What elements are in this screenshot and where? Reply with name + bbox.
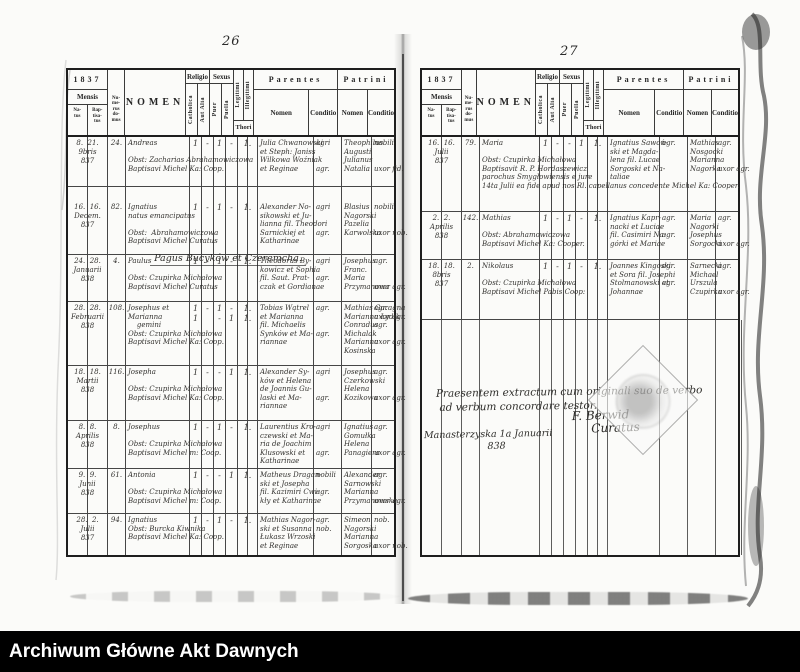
seal-disc: [605, 363, 681, 439]
mark-puella: -: [226, 514, 238, 555]
parentes-header: Parentes: [604, 70, 683, 90]
patrini-conditio-header: Conditio: [712, 90, 738, 135]
table-header: 1837 Mensis Na- tus Bap- tisa- tus Nu- m…: [68, 70, 394, 137]
thori-header: Thori: [234, 120, 253, 135]
mensis-header: Mensis: [422, 90, 461, 105]
mark-thori: 1.: [238, 366, 258, 420]
register-entry-row: 28. 2. Julii 837 94. Ignatius Obst: Burc…: [68, 514, 394, 555]
baptism-register-table: 1837 Mensis Na- tus Bap- tisa- tus Nu- m…: [66, 68, 396, 557]
baptisatus-header: Bap- tisa- tus: [442, 105, 461, 135]
register-entry-row: 16. 16. Julii 837 79. Maria Obst: Czupir…: [422, 137, 738, 212]
mark-thori: 1.: [238, 469, 258, 513]
register-entry-row: 9. 9. Junii 838 61. Antonia Obst: Czupir…: [68, 469, 394, 514]
parentes-conditio: agr. nob.: [314, 514, 342, 555]
patrini-nomen: Alexander Sarnowski Marianna Przymanowsk…: [342, 469, 372, 513]
patrini-nomen: Mathias Garagna Marianna Łydik Conradus …: [342, 302, 372, 365]
register-entry-row: 8. 21. 9bris 837 24. Andreas Obst: Zacha…: [68, 137, 394, 187]
mark-aut-alia: -: [552, 137, 564, 211]
nomen-header: NOMEN: [125, 70, 186, 135]
mark-puella: 1: [226, 366, 238, 420]
entry-name: Antonia Obst: Czupirka Michałowa Baptisa…: [126, 469, 190, 513]
parentes-nomen: Ignatius Sawoń- ski et Magda- lena fil. …: [608, 137, 660, 211]
mark-thori: 1. 1.: [238, 302, 258, 365]
patrini-conditio: nobili uxor nob.: [372, 187, 398, 254]
parentes-nomen: Ignatius Kapr- nacki et Luciae fil. Casi…: [608, 212, 660, 259]
entry-house-number: 82.: [108, 187, 126, 254]
year-header: 1837: [422, 70, 461, 90]
mark-puer: 1: [214, 137, 226, 186]
parentes-conditio: agr. agr.: [660, 212, 688, 259]
table-header: 1837 Mensis Na- tus Bap- tisa- tus Nu- m…: [422, 70, 738, 137]
entry-date: 9. 9. Junii 838: [68, 469, 108, 513]
archive-scan: 26 1837 Mensis Na- tus Bap- tisa- tus Nu…: [0, 0, 800, 672]
mark-catholica: 1: [540, 212, 552, 259]
patrini-conditio-header: Conditio: [368, 90, 394, 135]
parentes-conditio: agri agr.: [314, 137, 342, 186]
mark-aut-alia: -: [202, 137, 214, 186]
mark-thori: 1.: [588, 260, 608, 319]
mark-aut-alia: -: [202, 302, 214, 365]
entry-rows: 16. 16. Julii 837 79. Maria Obst: Czupir…: [422, 137, 738, 320]
mark-catholica: 1: [190, 469, 202, 513]
mark-catholica: 1: [540, 260, 552, 319]
entry-house-number: 142.: [462, 212, 480, 259]
entry-date: 18. 18. Martii 838: [68, 366, 108, 420]
entry-house-number: 24.: [108, 137, 126, 186]
catholica-header: Catholica: [538, 95, 544, 124]
puella-header: Puella: [224, 100, 230, 119]
register-page-left: 26 1837 Mensis Na- tus Bap- tisa- tus Nu…: [60, 28, 400, 613]
entry-house-number: 61.: [108, 469, 126, 513]
mark-puella: - 1: [226, 302, 238, 365]
mark-aut-alia: -: [202, 469, 214, 513]
patrini-header: Patrini: [684, 70, 738, 90]
aut-alia-header: Aut Alia: [550, 97, 556, 123]
entry-date: 18. 18. 8bris 837: [422, 260, 462, 319]
archive-name-label: Archiwum Główne Akt Dawnych: [9, 641, 299, 662]
mark-aut-alia: -: [202, 514, 214, 555]
religio-header: Religio: [536, 70, 559, 84]
mark-aut-alia: -: [202, 187, 214, 254]
register-entry-row: 2. 2. Aprilis 838 142. Mathias Obst: Abr…: [422, 212, 738, 260]
parentes-nomen: Alexander Sy- ków et Helena de Joannis G…: [258, 366, 314, 420]
parentes-conditio-header: Conditio: [655, 90, 683, 135]
mark-thori: 1.: [238, 187, 258, 254]
patrini-conditio: nobili uxor fid.: [372, 137, 398, 186]
mark-thori: 1.: [238, 421, 258, 468]
patrini-conditio: agr. uxor agr.: [716, 212, 742, 259]
mark-catholica: 1: [540, 137, 552, 211]
mark-puer: 1: [214, 514, 226, 555]
patrini-nomen: Mathias Nosgocki Marianna Nagorka: [688, 137, 716, 211]
patrini-conditio: agr. uxor agr.: [716, 137, 742, 211]
mark-catholica: 1: [190, 187, 202, 254]
legitimi-header: Legitimi: [585, 82, 591, 108]
catholica-header: Catholica: [188, 95, 194, 124]
mark-catholica: 1: [190, 514, 202, 555]
illegitimi-header: Illegitimi: [595, 81, 601, 109]
entry-date: 16. 16. Julii 837: [422, 137, 462, 211]
entry-name: Ignatius natus emancipatus Obst: Abraham…: [126, 187, 190, 254]
parentes-nomen-header: Nomen: [604, 90, 655, 135]
patrini-nomen: Simeon Nagorski Marianna Sorgoska: [342, 514, 372, 555]
mark-puer: 1: [214, 187, 226, 254]
mark-puella: 1: [576, 137, 588, 211]
parentes-nomen: Laurentius Kro- czewski et Ma- ria de Jo…: [258, 421, 314, 468]
entry-house-number: 79.: [462, 137, 480, 211]
entry-date: 16. 16. Decem. 837: [68, 187, 108, 254]
patrini-conditio: agr. uxor agr.: [716, 260, 742, 319]
parentes-nomen: Mathias Nagor- ski et Susanna Łukasz Wrz…: [258, 514, 314, 555]
mark-thori: 1.: [238, 137, 258, 186]
patrini-conditio: agr. uxor agr.: [372, 255, 398, 301]
baptisatus-header: Bap- tisa- tus: [88, 105, 107, 135]
archive-caption-bar: Archiwum Główne Akt Dawnych: [0, 631, 800, 672]
legitimi-header: Legitimi: [235, 82, 241, 108]
illegitimi-header: Illegitimi: [245, 81, 251, 109]
natus-header: Na- tus: [422, 105, 442, 135]
sexus-header: Sexus: [560, 70, 583, 84]
parentes-nomen: Tobias Wątrel et Marianna fil. Michaelis…: [258, 302, 314, 365]
mark-aut-alia: -: [552, 212, 564, 259]
patrini-nomen: Maria Nagorki Josephus Sorgocki: [688, 212, 716, 259]
mark-puella: -: [576, 212, 588, 259]
patrini-nomen: Theophilus Augusti Julianus Natalia: [342, 137, 372, 186]
entry-name: Maria Obst: Czupirka Michałowa Baptisavi…: [480, 137, 540, 211]
patrini-conditio: nob. uxor nob.: [372, 514, 398, 555]
mark-puella: -: [226, 421, 238, 468]
entry-date: 8. 21. 9bris 837: [68, 137, 108, 186]
religio-header: Religio: [186, 70, 209, 84]
entry-house-number: 116.: [108, 366, 126, 420]
patrini-nomen: Ignatius Gomułka Helena Panagiera: [342, 421, 372, 468]
aut-alia-header: Aut Alia: [200, 97, 206, 123]
patrini-nomen: Josephus Czerkowski Helena Kozikowa: [342, 366, 372, 420]
patrini-nomen-header: Nomen: [338, 90, 368, 135]
year-header: 1837: [68, 70, 107, 90]
patrini-conditio: agr. uxor agr. agr. uxor agr.: [372, 302, 398, 365]
entry-date: 2. 2. Aprilis 838: [422, 212, 462, 259]
certification-place-date: Manasterzyska 1a Januarii 838: [424, 428, 553, 454]
patrini-conditio: agr. uxor agr.: [372, 421, 398, 468]
entry-house-number: 94.: [108, 514, 126, 555]
entry-date: 8. 8. Aprilis 838: [68, 421, 108, 468]
mark-aut-alia: -: [202, 421, 214, 468]
patrini-nomen: Blasius Nagorski Pazelia Karwolska: [342, 187, 372, 254]
patrini-conditio: agr. uxor agr.: [372, 366, 398, 420]
mark-aut-alia: -: [202, 366, 214, 420]
mensis-header: Mensis: [68, 90, 107, 105]
parentes-header: Parentes: [254, 70, 337, 90]
baptism-register-table: 1837 Mensis Na- tus Bap- tisa- tus Nu- m…: [420, 68, 740, 557]
entry-date: 24. 28. Januarii 838: [68, 255, 108, 301]
register-page-right: 27 1837 Mensis Na- tus Bap- tisa- tus Nu…: [414, 28, 746, 613]
mark-thori: 1.: [588, 137, 608, 211]
mark-catholica: 1: [190, 421, 202, 468]
mark-puella: -: [226, 137, 238, 186]
parentes-nomen-header: Nomen: [254, 90, 309, 135]
mark-puer: 1 -: [214, 302, 226, 365]
parentes-conditio: agr. agr.: [314, 302, 342, 365]
register-entry-row: 16. 16. Decem. 837 82. Ignatius natus em…: [68, 187, 394, 255]
patrini-conditio: agr. uxor agr.: [372, 469, 398, 513]
mark-puer: 1: [214, 421, 226, 468]
patrini-nomen-header: Nomen: [684, 90, 712, 135]
parentes-nomen: Julia Chwanowski et Steph: Janiss Wilkow…: [258, 137, 314, 186]
mark-catholica: 1: [190, 366, 202, 420]
mark-puella: 1: [226, 469, 238, 513]
entry-name: Josephus Obst: Czupirka Michałowa Baptis…: [126, 421, 190, 468]
entry-house-number: 8.: [108, 421, 126, 468]
register-entry-row: 8. 8. Aprilis 838 8. Josephus Obst: Czup…: [68, 421, 394, 469]
page-number: 26: [222, 34, 241, 49]
mark-puer: -: [214, 469, 226, 513]
mark-thori: 1.: [588, 212, 608, 259]
mark-puella: -: [226, 187, 238, 254]
parentes-nomen: Joannes Kingoski et Sora fil. Josephi St…: [608, 260, 660, 319]
entry-name: Nikolaus Obst: Czupirka Michałowa Baptis…: [480, 260, 540, 319]
entry-name: Andreas Obst: Zacharias Abrahamowiczowa …: [126, 137, 190, 186]
register-entry-row: 18. 18. Martii 838 116. Josepha Obst: Cz…: [68, 366, 394, 421]
entry-name: Josephus et Marianna gemini Obst: Czupir…: [126, 302, 190, 365]
natus-header: Na- tus: [68, 105, 88, 135]
mark-catholica: 1 1: [190, 302, 202, 365]
patrini-nomen: Sarnecki Michael Urszula Czupirka: [688, 260, 716, 319]
parentes-conditio: agr. agr.: [660, 260, 688, 319]
parentes-conditio: agri agr.: [314, 187, 342, 254]
entry-name: Mathias Obst: Abrahamowiczowa Baptisavi …: [480, 212, 540, 259]
patrini-header: Patrini: [338, 70, 394, 90]
mark-puer: 1: [564, 212, 576, 259]
nomen-header: NOMEN: [477, 70, 536, 135]
numerus-domus-header: Nu- me- rus do- mus: [462, 70, 477, 135]
mark-puer: -: [214, 366, 226, 420]
sexus-header: Sexus: [210, 70, 233, 84]
mark-catholica: 1: [190, 137, 202, 186]
parentes-conditio: nobili agr.: [314, 469, 342, 513]
puella-header: Puella: [574, 100, 580, 119]
register-entry-row: 18. 18. 8bris 837 2. Nikolaus Obst: Czup…: [422, 260, 738, 320]
puer-header: Puer: [212, 102, 218, 116]
entry-date: 28. 2. Julii 837: [68, 514, 108, 555]
entry-house-number: 2.: [462, 260, 480, 319]
mark-aut-alia: -: [552, 260, 564, 319]
parentes-nomen: Matheus Dragan- ski et Josepha fil. Kazi…: [258, 469, 314, 513]
entry-name: Ignatius Obst: Burcka Kiwnika Baptisavi …: [126, 514, 190, 555]
register-entry-row: 28. 28. Februarii 838 108. Josephus et M…: [68, 302, 394, 366]
mark-thori: 1.: [238, 514, 258, 555]
thori-header: Thori: [584, 120, 603, 135]
entry-rows: 8. 21. 9bris 837 24. Andreas Obst: Zacha…: [68, 137, 394, 555]
patrini-nomen: Josephus Franc. Maria Przymanowa: [342, 255, 372, 301]
mark-puer: -: [564, 137, 576, 211]
parentes-conditio: agri agr.: [314, 421, 342, 468]
entry-house-number: 108.: [108, 302, 126, 365]
parentes-conditio-header: Conditio: [309, 90, 337, 135]
mark-puella: -: [576, 260, 588, 319]
mark-puer: 1: [564, 260, 576, 319]
numerus-domus-header: Nu- me- rus do- mus: [108, 70, 125, 135]
village-section-header: Pagus Bucyków et Czeremcha.: [120, 253, 336, 264]
parentes-conditio: agri agr.: [314, 366, 342, 420]
parentes-nomen: Alexander No- sikowski et Ju- lianna fil…: [258, 187, 314, 254]
puer-header: Puer: [562, 102, 568, 116]
entry-date: 28. 28. Februarii 838: [68, 302, 108, 365]
page-number: 27: [560, 44, 579, 59]
parentes-conditio: agr.: [660, 137, 688, 211]
entry-name: Josepha Obst: Czupirka Michałowa Baptisa…: [126, 366, 190, 420]
